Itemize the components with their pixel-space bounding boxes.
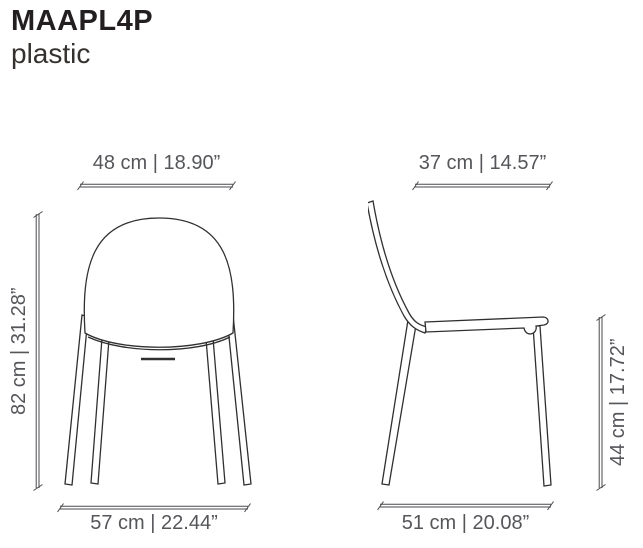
- front-height-dimension-line: [33, 210, 43, 492]
- front-shell: [84, 218, 233, 347]
- side-seat: [425, 317, 548, 334]
- side-seat-height-dimension-label: 44 cm | 17.72”: [606, 313, 631, 492]
- side-depth-top-dimension-label: 37 cm | 14.57”: [411, 151, 554, 175]
- product-spec-sheet: MAAPL4P plastic 48 cm | 18.90” 82 cm | 3…: [0, 0, 643, 548]
- page-subtitle: plastic: [11, 38, 90, 70]
- side-depth-bottom-dimension-label: 51 cm | 20.08”: [376, 511, 555, 535]
- side-seat-height-dimension-line: [596, 313, 606, 492]
- front-width-top-dimension-line: [76, 181, 237, 191]
- front-height-dimension-label: 82 cm | 31.28”: [7, 210, 32, 492]
- front-width-bottom-dimension-label: 57 cm | 22.44”: [56, 511, 252, 535]
- side-backrest: [368, 201, 427, 333]
- side-front-leg: [533, 326, 551, 486]
- chair-front-view-drawing: [55, 205, 270, 500]
- page-title: MAAPL4P: [11, 5, 153, 38]
- chair-side-view-drawing: [368, 196, 568, 496]
- front-front-right-leg: [206, 338, 225, 484]
- side-rear-leg: [382, 320, 416, 485]
- front-rear-right-leg: [227, 315, 251, 485]
- side-depth-top-dimension-line: [411, 181, 554, 191]
- side-depth-bottom-dimension-line: [376, 501, 555, 511]
- front-rear-left-leg: [65, 315, 88, 485]
- front-width-top-dimension-label: 48 cm | 18.90”: [76, 151, 237, 175]
- front-front-left-leg: [91, 338, 109, 484]
